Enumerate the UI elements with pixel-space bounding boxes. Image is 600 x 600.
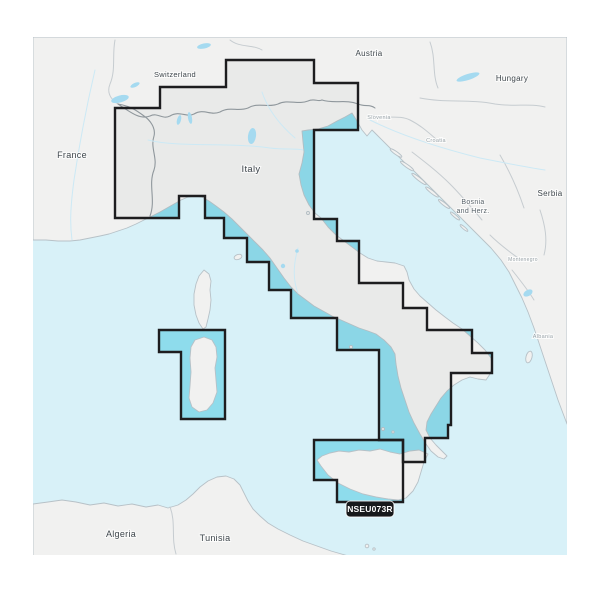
- country-label-and-herz-: and Herz.: [456, 208, 489, 215]
- country-label-algeria: Algeria: [106, 529, 136, 539]
- chart-region-badge: NSEU073R: [346, 501, 394, 517]
- product-coverage-image: SwitzerlandAustriaHungaryFranceItalySerb…: [0, 0, 600, 600]
- lake-bolsena: [281, 264, 285, 268]
- country-label-austria: Austria: [356, 49, 383, 58]
- lake-trasimeno: [295, 249, 299, 253]
- chart-region-code: NSEU073R: [347, 504, 393, 514]
- coverage-map-image: SwitzerlandAustriaHungaryFranceItalySerb…: [0, 0, 600, 600]
- country-label-croatia: Croatia: [426, 138, 446, 144]
- country-label-tunisia: Tunisia: [200, 533, 231, 543]
- country-label-albania: Albania: [533, 334, 554, 340]
- country-label-switzerland: Switzerland: [154, 70, 196, 79]
- country-label-france: France: [57, 150, 87, 160]
- country-label-bosnia: Bosnia: [461, 199, 484, 206]
- island-sardinia: [189, 337, 217, 412]
- country-label-montenegro: Montenegro: [508, 257, 538, 263]
- country-label-serbia: Serbia: [538, 189, 563, 198]
- country-label-italy: Italy: [242, 164, 261, 175]
- country-label-hungary: Hungary: [496, 74, 528, 83]
- country-label-slovenia: Slovenia: [367, 115, 391, 121]
